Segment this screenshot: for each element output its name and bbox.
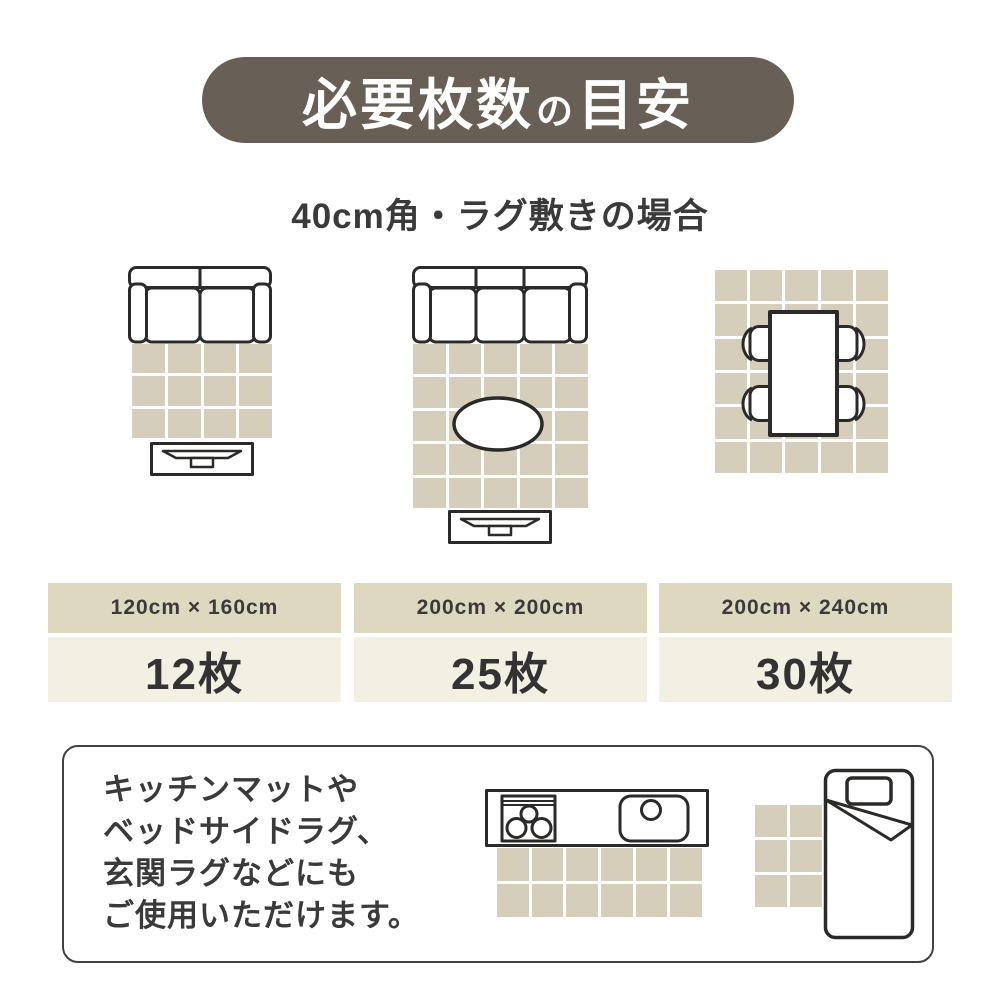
rug-tile <box>555 411 588 441</box>
rug-tile <box>204 376 237 405</box>
rug-tile <box>566 884 598 917</box>
sofa-2seat-icon <box>128 266 272 344</box>
rug-tile <box>555 344 588 374</box>
rug-tile <box>755 805 787 837</box>
size-label: 120cm × 160cm <box>48 583 341 633</box>
rug-tile <box>566 848 598 881</box>
rug-tile <box>132 376 165 405</box>
rug-tile <box>555 444 588 474</box>
rug-tile <box>555 377 588 407</box>
rug-tile <box>239 409 272 438</box>
rug-tile <box>484 478 517 508</box>
rug-tile <box>484 344 517 374</box>
rug-tile <box>168 376 201 405</box>
title-banner: 必要枚数の目安 <box>202 57 794 143</box>
note-line: 玄関ラグなどにも <box>103 853 420 895</box>
rug-tile <box>636 884 668 917</box>
rug-tile <box>520 344 553 374</box>
size-label: 200cm × 240cm <box>659 583 952 633</box>
rug-tile <box>532 848 564 881</box>
rug-tile <box>532 884 564 917</box>
rug-tile <box>520 478 553 508</box>
rug-tile <box>636 848 668 881</box>
note-line: ベッドサイドラグ、 <box>103 811 420 853</box>
rug-tile <box>790 875 822 907</box>
sofa-3seat-icon <box>412 266 588 344</box>
rug-tile <box>449 478 482 508</box>
oval-low-table-icon <box>450 394 546 454</box>
rug-tile <box>497 884 529 917</box>
rug-tile <box>239 344 272 373</box>
rug-tile <box>555 478 588 508</box>
rug-tile <box>204 409 237 438</box>
rug-tile <box>449 344 482 374</box>
size-label: 200cm × 200cm <box>354 583 647 633</box>
count-label: 25枚 <box>354 637 647 702</box>
infographic-page: 必要枚数の目安 40cm角・ラグ敷きの場合 <box>0 0 1000 1000</box>
rug-tile <box>755 840 787 872</box>
rug-tile <box>132 344 165 373</box>
rug-tile <box>413 344 446 374</box>
title-text: 必要枚数の目安 <box>302 60 694 140</box>
subtitle: 40cm角・ラグ敷きの場合 <box>0 188 1000 239</box>
rug-tile <box>670 848 702 881</box>
rug-tile <box>790 840 822 872</box>
rug-tile <box>168 344 201 373</box>
rug-tile <box>168 409 201 438</box>
bedside-mat-grid <box>755 805 822 907</box>
kitchen-mat-grid <box>497 848 702 917</box>
title-part-particle: の <box>536 91 576 132</box>
rug-grid-1 <box>132 344 272 438</box>
spec-column-1: 120cm × 160cm 12枚 <box>48 583 341 702</box>
rug-tile <box>413 377 446 407</box>
title-part-main2: 目安 <box>578 74 694 136</box>
usage-note-text: キッチンマットや ベッドサイドラグ、 玄関ラグなどにも ご使用いただけます。 <box>103 769 420 937</box>
rug-tile <box>670 884 702 917</box>
rug-tile <box>413 478 446 508</box>
rug-tile <box>601 848 633 881</box>
rug-tile <box>204 344 237 373</box>
bed-icon <box>823 768 915 940</box>
rug-tile <box>601 884 633 917</box>
rug-tile <box>132 409 165 438</box>
note-line: キッチンマットや <box>103 769 420 811</box>
title-part-main1: 必要枚数 <box>302 74 534 136</box>
dining-set-icon <box>715 270 888 473</box>
rug-tile <box>790 805 822 837</box>
tv-board-icon <box>150 442 254 476</box>
tv-board-icon <box>448 510 552 544</box>
kitchen-counter-icon <box>485 789 709 847</box>
rug-tile <box>413 444 446 474</box>
spec-column-2: 200cm × 200cm 25枚 <box>354 583 647 702</box>
count-label: 30枚 <box>659 637 952 702</box>
rug-tile <box>755 875 787 907</box>
count-label: 12枚 <box>48 637 341 702</box>
spec-column-3: 200cm × 240cm 30枚 <box>659 583 952 702</box>
rug-tile <box>497 848 529 881</box>
rug-tile <box>239 376 272 405</box>
rug-tile <box>413 411 446 441</box>
note-line: ご使用いただけます。 <box>103 895 420 937</box>
